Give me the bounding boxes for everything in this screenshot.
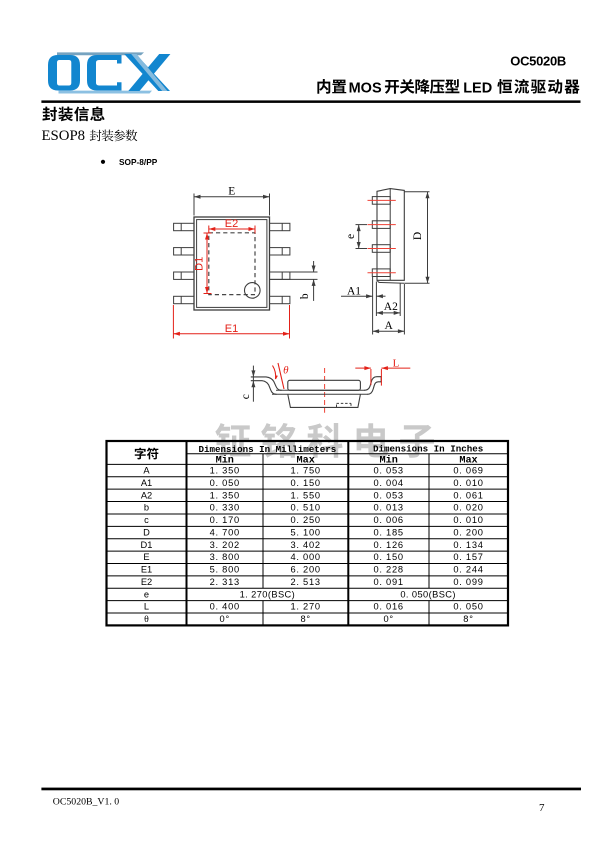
svg-text:L: L (393, 358, 400, 370)
svg-text:A: A (384, 320, 393, 332)
svg-text:c: c (144, 515, 149, 525)
svg-text:8°: 8° (463, 614, 473, 624)
svg-text:E1: E1 (141, 565, 152, 575)
svg-text:D: D (143, 527, 150, 537)
svg-text:SOP-8/PP: SOP-8/PP (119, 157, 158, 167)
svg-text:0. 185: 0. 185 (373, 527, 403, 537)
svg-text:0. 010: 0. 010 (453, 478, 483, 488)
svg-text:0. 069: 0. 069 (453, 465, 483, 475)
svg-text:0. 228: 0. 228 (373, 565, 403, 575)
svg-text:0. 061: 0. 061 (453, 490, 483, 500)
svg-text:0. 099: 0. 099 (453, 577, 483, 587)
svg-text:0. 050: 0. 050 (210, 478, 240, 488)
svg-text:A1: A1 (347, 286, 361, 298)
svg-text:0°: 0° (383, 614, 393, 624)
svg-text:0. 170: 0. 170 (210, 515, 240, 525)
svg-text:1. 270: 1. 270 (290, 602, 320, 612)
svg-text:A1: A1 (141, 478, 152, 488)
svg-text:0. 004: 0. 004 (373, 478, 403, 488)
svg-text:6. 200: 6. 200 (290, 565, 320, 575)
svg-text:L: L (144, 602, 149, 612)
svg-text:0. 134: 0. 134 (453, 540, 483, 550)
svg-text:0. 010: 0. 010 (453, 515, 483, 525)
svg-text:0. 053: 0. 053 (373, 490, 403, 500)
svg-text:E: E (228, 185, 235, 197)
svg-text:1. 350: 1. 350 (210, 490, 240, 500)
svg-text:e: e (144, 589, 149, 599)
svg-text:E: E (143, 552, 149, 562)
svg-text:4. 000: 4. 000 (290, 552, 320, 562)
svg-text:0. 250: 0. 250 (290, 515, 320, 525)
svg-text:0. 050(BSC): 0. 050(BSC) (400, 589, 456, 599)
svg-text:θ: θ (283, 364, 289, 376)
svg-text:0. 330: 0. 330 (210, 503, 240, 513)
svg-text:0. 020: 0. 020 (453, 503, 483, 513)
svg-text:0. 006: 0. 006 (373, 515, 403, 525)
svg-text:A2: A2 (384, 301, 398, 313)
svg-text:2. 313: 2. 313 (210, 577, 240, 587)
svg-text:0. 157: 0. 157 (453, 552, 483, 562)
svg-text:1. 270(BSC): 1. 270(BSC) (240, 589, 296, 599)
svg-text:OC5020B: OC5020B (510, 54, 566, 69)
svg-text:0. 400: 0. 400 (210, 602, 240, 612)
svg-text:D: D (412, 232, 424, 240)
svg-text:0. 244: 0. 244 (453, 565, 483, 575)
svg-text:7: 7 (539, 802, 545, 814)
svg-text:3. 202: 3. 202 (210, 540, 240, 550)
svg-text:OC5020B_V1. 0: OC5020B_V1. 0 (53, 796, 120, 807)
svg-text:0. 150: 0. 150 (290, 478, 320, 488)
svg-text:8°: 8° (300, 614, 310, 624)
svg-text:0. 150: 0. 150 (373, 552, 403, 562)
svg-text:0. 053: 0. 053 (373, 465, 403, 475)
svg-text:Dimensions In Inches: Dimensions In Inches (373, 443, 483, 454)
svg-text:LED: LED (463, 80, 492, 96)
svg-text:D1: D1 (141, 540, 153, 550)
svg-text:4. 700: 4. 700 (210, 527, 240, 537)
svg-text:0. 013: 0. 013 (373, 503, 403, 513)
svg-text:θ: θ (144, 614, 149, 625)
svg-text:5. 800: 5. 800 (210, 565, 240, 575)
svg-text:0. 016: 0. 016 (373, 602, 403, 612)
svg-text:ESOP8: ESOP8 (42, 128, 86, 144)
svg-text:0. 200: 0. 200 (453, 527, 483, 537)
svg-text:3. 402: 3. 402 (290, 540, 320, 550)
svg-text:1. 550: 1. 550 (290, 490, 320, 500)
svg-text:0. 050: 0. 050 (453, 602, 483, 612)
svg-text:E2: E2 (225, 218, 238, 230)
svg-text:E2: E2 (141, 577, 152, 587)
svg-text:1. 350: 1. 350 (210, 465, 240, 475)
svg-text:A: A (143, 465, 150, 475)
svg-text:D1: D1 (193, 257, 205, 271)
svg-text:A2: A2 (141, 490, 152, 500)
svg-text:3. 800: 3. 800 (210, 552, 240, 562)
svg-text:b: b (299, 293, 311, 299)
svg-text:0°: 0° (220, 614, 230, 624)
svg-text:0. 126: 0. 126 (373, 540, 403, 550)
svg-text:E1: E1 (225, 323, 238, 335)
svg-text:MOS: MOS (349, 80, 382, 96)
svg-text:b: b (144, 503, 149, 513)
svg-text:Dimensions In Millimeters: Dimensions In Millimeters (198, 444, 336, 455)
svg-text:e: e (345, 234, 357, 239)
svg-text:0. 091: 0. 091 (373, 577, 403, 587)
svg-text:0. 510: 0. 510 (290, 503, 320, 513)
svg-text:2. 513: 2. 513 (290, 577, 320, 587)
svg-text:c: c (240, 394, 252, 399)
svg-text:5. 100: 5. 100 (290, 527, 320, 537)
svg-text:1. 750: 1. 750 (290, 465, 320, 475)
